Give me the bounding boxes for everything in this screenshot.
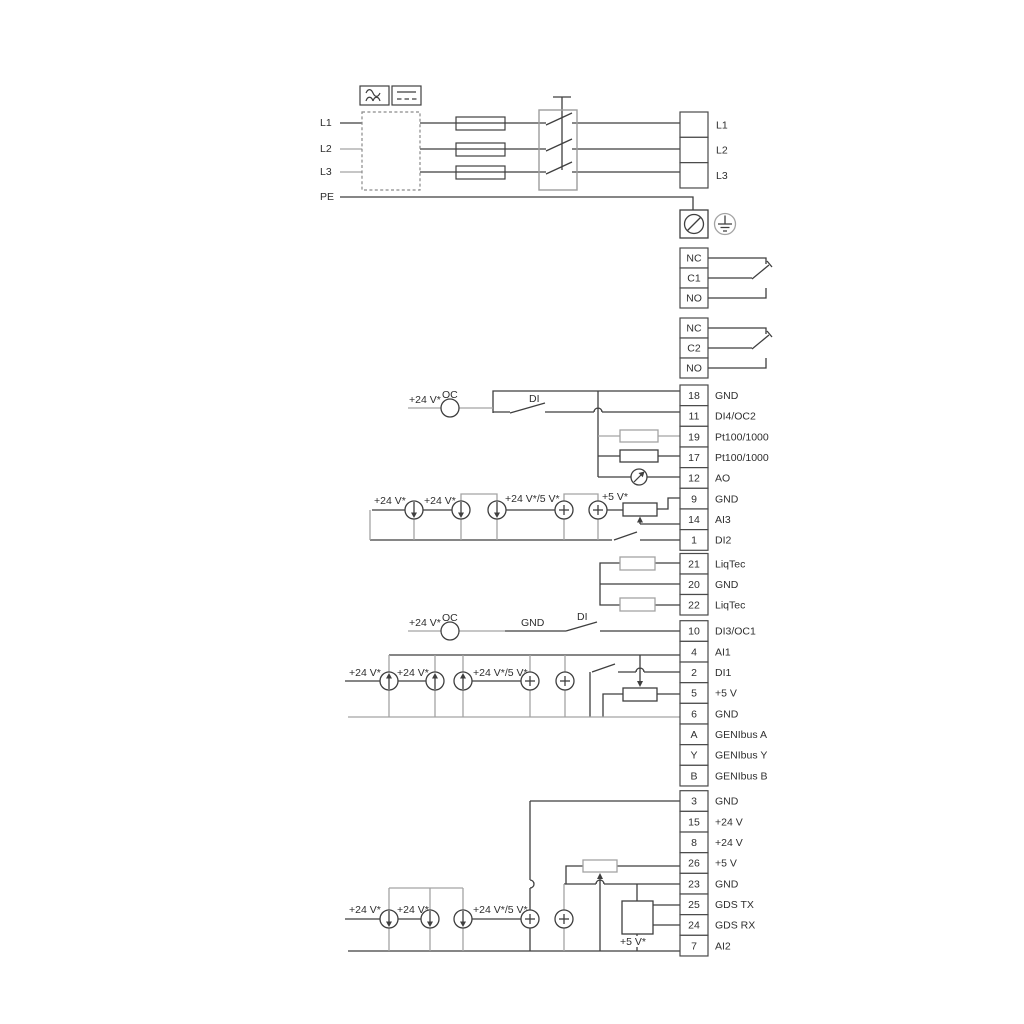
terminal-number: 22 xyxy=(688,599,700,611)
terminal-number: 4 xyxy=(691,646,697,658)
terminal-label: GND xyxy=(715,878,739,890)
terminal-label: L2 xyxy=(716,145,728,157)
liqtec-resistor-22 xyxy=(620,598,655,611)
gds-sensor-box xyxy=(622,901,653,934)
phase-label-l3: L3 xyxy=(320,166,332,178)
terminal-number: 20 xyxy=(688,579,700,591)
current-sink-icon xyxy=(454,910,472,928)
oc-label: OC xyxy=(442,612,458,624)
liqtec-resistor-21 xyxy=(620,557,655,570)
terminal-label: +5 V xyxy=(715,858,737,870)
relay-wires xyxy=(708,258,772,368)
terminal-number: NC xyxy=(686,323,702,335)
ai3-pot-wiper-arrow xyxy=(637,517,643,523)
analog-out-meter-icon xyxy=(631,469,647,485)
power-wires-gray xyxy=(340,149,362,172)
terminal-label: L3 xyxy=(716,170,728,182)
relay2-terminal-block: NCC2NO xyxy=(680,318,708,378)
terminal-label: +24 V xyxy=(715,816,743,828)
terminal-number: 17 xyxy=(688,452,700,464)
terminal-label: Pt100/1000 xyxy=(715,452,769,464)
terminal-number: 23 xyxy=(688,878,700,890)
di-label: DI xyxy=(577,611,588,623)
dc-symbol-icon xyxy=(397,92,417,99)
terminal-label: DI3/OC1 xyxy=(715,626,756,638)
terminal-label: DI2 xyxy=(715,535,732,547)
v5-label: +5 V* xyxy=(602,491,628,503)
power-terminal-block: L1L2L3 xyxy=(680,112,728,188)
terminal-number: 26 xyxy=(688,858,700,870)
terminal-label: AO xyxy=(715,473,730,485)
terminal-number: 14 xyxy=(688,514,700,526)
io-terminal-block-2: 10DI3/OC14AI12DI15+5 V6GNDAGENIbus AYGEN… xyxy=(680,621,768,786)
terminal-number: NO xyxy=(686,293,702,305)
terminal-number: NC xyxy=(686,253,702,265)
setpoint-potentiometer xyxy=(583,860,617,872)
liqtec-terminal-block: 21LiqTec20GND22LiqTec xyxy=(680,554,745,616)
relay1-terminal-block: NCC1NO xyxy=(680,248,708,308)
terminal-label: GDS TX xyxy=(715,899,754,911)
pt100-resistor-17 xyxy=(620,450,658,462)
terminal-label: GND xyxy=(715,579,739,591)
current-sink-icon xyxy=(380,672,398,690)
ai1-potentiometer xyxy=(623,688,657,701)
terminal-number: 21 xyxy=(688,558,700,570)
current-sink-icon xyxy=(405,501,423,519)
terminal-label: GENIbus Y xyxy=(715,750,767,762)
terminal-number: 9 xyxy=(691,493,697,505)
terminal-number: 5 xyxy=(691,688,697,700)
v24-label: +24 V* xyxy=(409,394,441,406)
v24-label: +24 V* xyxy=(397,904,429,916)
phase-label-l1: L1 xyxy=(320,117,332,129)
main-switch-box xyxy=(539,110,577,190)
current-sink-icon xyxy=(488,501,506,519)
terminal-number: 1 xyxy=(691,535,697,547)
current-source-icon xyxy=(556,672,574,690)
ai1-option-wires-gray xyxy=(348,655,680,717)
v24-label: +24 V* xyxy=(397,667,429,679)
terminal-number: 18 xyxy=(688,390,700,402)
terminal-cell xyxy=(680,137,708,162)
current-sink-icon xyxy=(380,910,398,928)
pt100-resistor-19 xyxy=(620,430,658,442)
terminal-number: Y xyxy=(690,750,697,762)
terminal-label: GND xyxy=(715,493,739,505)
ai3-potentiometer xyxy=(623,503,657,516)
terminal-number: 3 xyxy=(691,796,697,808)
terminal-number: A xyxy=(690,729,697,741)
v24-label: +24 V* xyxy=(409,617,441,629)
terminal-label: L1 xyxy=(716,119,728,131)
oc2-open-collector-icon xyxy=(441,399,459,417)
v24-label: +24 V* xyxy=(349,904,381,916)
dc-symbol-box xyxy=(392,86,421,105)
io-terminal-block-1: 18GND11DI4/OC219Pt100/100017Pt100/100012… xyxy=(680,385,769,550)
terminal-label: AI2 xyxy=(715,940,731,952)
terminal-label: +5 V xyxy=(715,688,737,700)
v24-label: +24 V* xyxy=(424,495,456,507)
wiring-diagram-page: L1 L2 L3 PE +24 V* OC DI +24 V* +24 V* +… xyxy=(0,0,1024,1024)
oc-label: OC xyxy=(442,389,458,401)
phase-label-pe: PE xyxy=(320,191,334,203)
terminal-label: LiqTec xyxy=(715,558,745,570)
v24-5v-label: +24 V*/5 V* xyxy=(473,904,528,916)
current-sink-icon xyxy=(454,672,472,690)
terminal-number: NO xyxy=(686,363,702,375)
terminal-label: Pt100/1000 xyxy=(715,431,769,443)
v24-label: +24 V* xyxy=(349,667,381,679)
terminal-number: 25 xyxy=(688,899,700,911)
current-source-icon xyxy=(555,910,573,928)
terminal-label: AI3 xyxy=(715,514,731,526)
terminal-number: 6 xyxy=(691,708,697,720)
terminal-label: LiqTec xyxy=(715,599,745,611)
terminal-number: 10 xyxy=(688,626,700,638)
oc1-open-collector-icon xyxy=(441,622,459,640)
v24-5v-label: +24 V*/5 V* xyxy=(473,667,528,679)
pump-wiring-diagram: L1 L2 L3 PE +24 V* OC DI +24 V* +24 V* +… xyxy=(0,0,1024,1024)
terminal-number: 7 xyxy=(691,940,697,952)
terminal-label: GDS RX xyxy=(715,920,755,932)
terminal-label: DI1 xyxy=(715,667,732,679)
terminal-number: C1 xyxy=(687,273,701,285)
terminal-cell xyxy=(680,163,708,188)
current-source-icon xyxy=(589,501,607,519)
v5-label: +5 V* xyxy=(620,936,646,948)
terminal-label: +24 V xyxy=(715,837,743,849)
terminal-label: GENIbus B xyxy=(715,770,768,782)
di-label: DI xyxy=(529,393,540,405)
ai1-pot-wiper-arrow xyxy=(637,681,643,687)
earth-ground-icon xyxy=(715,214,736,235)
setpoint-pot-wiper-arrow xyxy=(597,873,603,879)
terminal-number: 8 xyxy=(691,837,697,849)
ac-symbol-icon xyxy=(366,90,380,101)
terminal-number: 24 xyxy=(688,920,700,932)
power-wires xyxy=(340,97,693,210)
terminal-number: 2 xyxy=(691,667,697,679)
io-terminal-block-3: 3GND15+24 V8+24 V26+5 V23GND25GDS TX24GD… xyxy=(680,791,755,956)
terminal-label: DI4/OC2 xyxy=(715,411,756,423)
terminal-number: B xyxy=(690,770,697,782)
terminal-number: 19 xyxy=(688,431,700,443)
terminal-number: 12 xyxy=(688,473,700,485)
rfi-filter-box xyxy=(362,112,420,190)
terminal-label: AI1 xyxy=(715,646,731,658)
v24-label: +24 V* xyxy=(374,495,406,507)
terminal-number: C2 xyxy=(687,343,701,355)
v24-5v-label: +24 V*/5 V* xyxy=(505,493,560,505)
terminal-number: 11 xyxy=(689,411,700,423)
terminal-label: GND xyxy=(715,708,739,720)
phase-label-l2: L2 xyxy=(320,143,332,155)
terminal-number: 15 xyxy=(688,816,700,828)
terminal-cell xyxy=(680,112,708,137)
terminal-label: GND xyxy=(715,796,739,808)
gnd-label: GND xyxy=(521,617,545,629)
terminal-label: GENIbus A xyxy=(715,729,767,741)
terminal-label: GND xyxy=(715,390,739,402)
